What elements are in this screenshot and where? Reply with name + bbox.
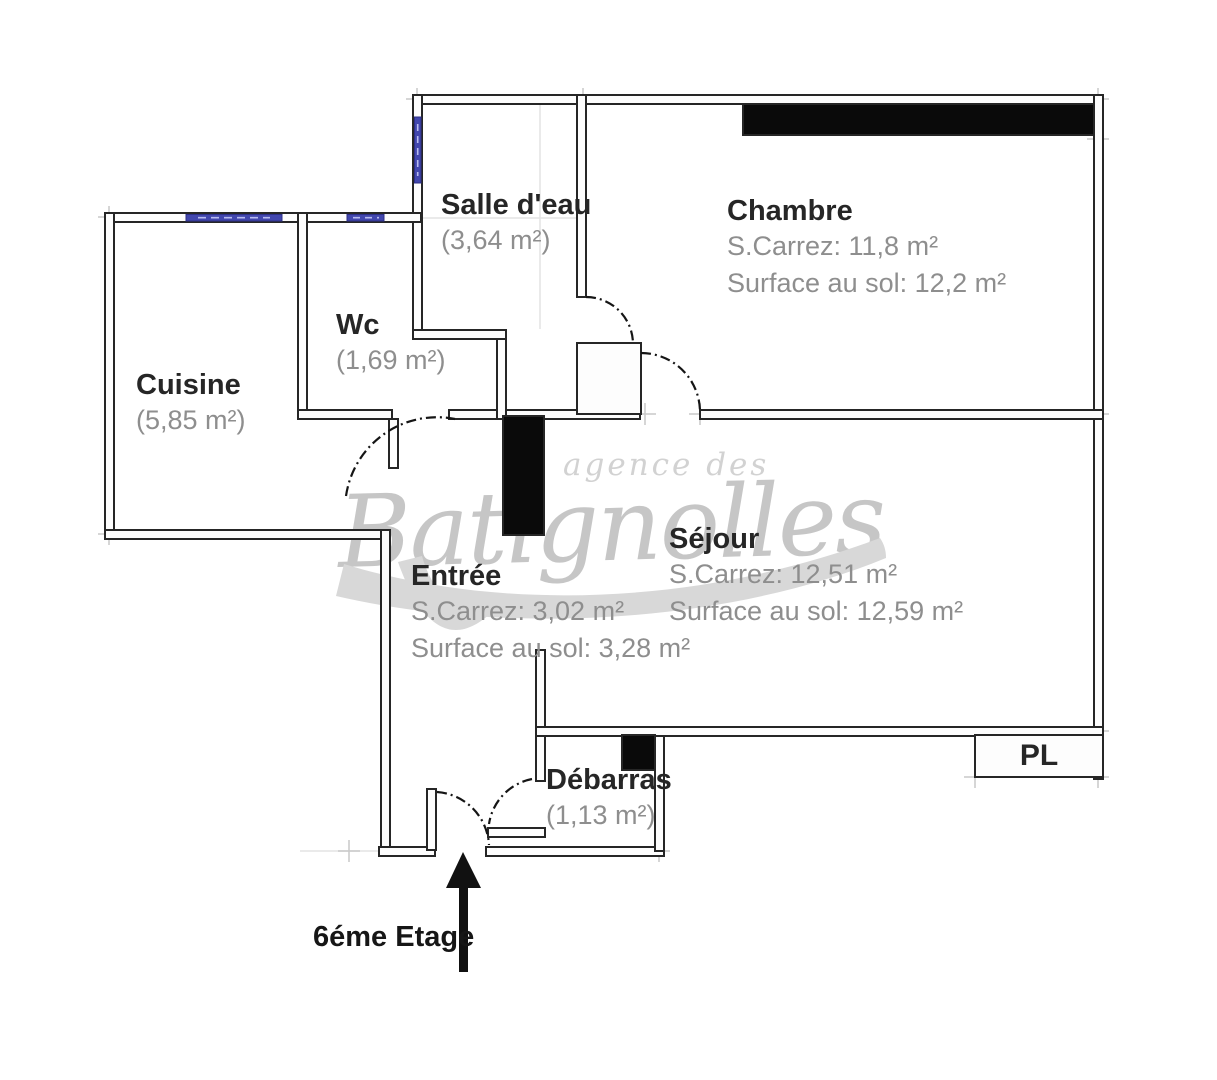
room-surface: Surface au sol: 3,28 m²: [411, 630, 690, 667]
floorplan-drawing: [0, 0, 1217, 1080]
kitchen-door-arc: [346, 417, 455, 496]
floor-level-label: 6éme Etage: [313, 921, 474, 954]
room-label-cuisine: Cuisine (5,85 m²): [136, 368, 246, 439]
entrance-arrow-icon: [446, 852, 481, 972]
room-carrez: S.Carrez: 12,51 m²: [669, 556, 963, 593]
windows: [186, 117, 421, 221]
wc-window-icon: [347, 215, 384, 222]
storage-door-arc: [489, 779, 532, 824]
room-surface: Surface au sol: 12,59 m²: [669, 593, 963, 630]
room-area: (5,85 m²): [136, 402, 246, 439]
room-surface: Surface au sol: 12,2 m²: [727, 265, 1006, 302]
room-label-sejour: Séjour S.Carrez: 12,51 m² Surface au sol…: [669, 522, 963, 630]
bathroom-door-arc: [586, 297, 633, 344]
room-carrez: S.Carrez: 3,02 m²: [411, 593, 690, 630]
room-area: (3,64 m²): [441, 222, 591, 259]
room-label-entree: Entrée S.Carrez: 3,02 m² Surface au sol:…: [411, 559, 690, 667]
room-label-salle-deau: Salle d'eau (3,64 m²): [441, 188, 591, 259]
room-name: Entrée: [411, 559, 690, 593]
room-name: Chambre: [727, 194, 1006, 228]
room-name: Cuisine: [136, 368, 246, 402]
room-label-debarras: Débarras (1,13 m²): [546, 763, 672, 834]
bathroom-window-icon: [415, 117, 422, 183]
kitchen-window-icon: [186, 215, 282, 222]
entry-door-arc: [437, 792, 489, 845]
room-area: (1,13 m²): [546, 797, 672, 834]
room-name: Salle d'eau: [441, 188, 591, 222]
room-label-wc: Wc (1,69 m²): [336, 308, 446, 379]
room-area: (1,69 m²): [336, 342, 446, 379]
room-carrez: S.Carrez: 11,8 m²: [727, 228, 1006, 265]
room-name: Wc: [336, 308, 446, 342]
bedroom-door-arc: [641, 353, 700, 412]
floorplan-page: agence des Batignolles: [0, 0, 1217, 1080]
room-name: Débarras: [546, 763, 672, 797]
room-name: Séjour: [669, 522, 963, 556]
room-label-chambre: Chambre S.Carrez: 11,8 m² Surface au sol…: [727, 194, 1006, 302]
closet-label-pl: PL: [975, 735, 1103, 777]
